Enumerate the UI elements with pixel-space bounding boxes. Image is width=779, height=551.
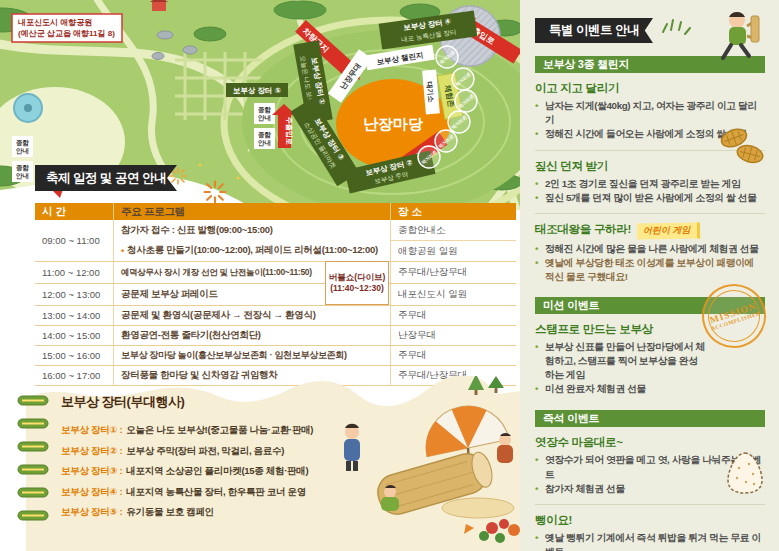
- market-list-item: 보부상 장터② : 보부상 주막(장터 파전, 막걸리, 음료수): [61, 445, 361, 458]
- svg-text:안내: 안내: [16, 147, 29, 155]
- info-booth-label: 종합 안내: [12, 161, 33, 182]
- svg-text:종합: 종합: [258, 106, 272, 114]
- cell-place: 내포신도시 일원: [390, 284, 516, 305]
- market-list-item: 보부상 장터③ : 내포지역 소상공인 플리마켓(15종 체험·판매): [61, 465, 361, 478]
- cell-place: 난장무대: [390, 326, 516, 345]
- event-title-taffy: 엿장수 마음대로~: [535, 435, 765, 450]
- park-name-box: 내포신도시 애향공원 (예산군 삽교읍 애향11길 8): [12, 14, 122, 42]
- schedule-banner: 축제 일정 및 공연 안내: [35, 165, 177, 191]
- svg-text:주출입로: 주출입로: [285, 117, 293, 145]
- svg-text:안내: 안내: [258, 139, 271, 147]
- pond-center: [24, 104, 32, 112]
- market-section-title: 보부상 장터(부대행사): [61, 393, 184, 411]
- kids-game-badge: 어린이 게임: [637, 222, 700, 239]
- cell-program: 공문제 및 환영식(공문제사 → 전장식 → 환영식): [113, 306, 390, 325]
- place-line: 종합안내소: [391, 220, 516, 240]
- madang-label: 난장마당: [363, 115, 423, 132]
- cell-time: 11:00 ~ 12:00: [35, 262, 113, 283]
- svg-text:안내: 안내: [16, 172, 29, 180]
- event-title-text: 태조대왕을 구하라!: [535, 223, 631, 235]
- bubble-show-box: 버블쇼(다이브) (11:40~12:30): [325, 261, 389, 305]
- info-booth-label: 종합 안내: [12, 136, 33, 157]
- special-events-panel: 특별 이벤트 안내 보부상 3종 챌린지 이고 지고 달리기 남자는 지게(쌀4…: [520, 0, 779, 551]
- event-bullet: 2인 1조 경기로 짚신을 던져 광주리로 받는 게임: [535, 177, 765, 191]
- event-bullet: 미션 완료자 체험권 선물: [535, 382, 765, 396]
- special-events-banner: 특별 이벤트 안내: [535, 18, 653, 43]
- market-item-label: 보부상 장터① :: [61, 424, 122, 437]
- market-section-list: 보부상 장터① : 오늘은 나도 보부상!(중고물품 나눔·교환·판매) 보부상…: [61, 424, 361, 527]
- market-item-desc: 오늘은 나도 보부상!(중고물품 나눔·교환·판매): [126, 424, 313, 437]
- event-bullet: 보부상 신표를 만들어 난장마당에서 체험하고, 스탬프를 찍어 보부상을 완성…: [535, 340, 705, 383]
- mission-stamp-icon: MISSION ACCOMPLISHED: [694, 276, 775, 357]
- info-booth-label: 종합 안내: [254, 103, 275, 124]
- runner-illustration: [707, 6, 769, 68]
- svg-text:안내: 안내: [258, 114, 271, 122]
- table-row: 15:00 ~ 16:00 보부상 장마당 놀이(홍산보부상보존회 · 임천보부…: [35, 346, 516, 366]
- cell-time: 15:00 ~ 16:00: [35, 346, 113, 365]
- market-item-label: 보부상 장터⑤ :: [61, 506, 122, 519]
- info-booth-label: 종합 안내: [254, 128, 275, 149]
- cell-time: 12:00 ~ 13:00: [35, 284, 113, 305]
- bubble-show-name: 버블쇼(다이브): [329, 272, 386, 283]
- col-header-place: 장 소: [390, 203, 516, 220]
- event-bullet: 짚신 5개를 던져 많이 받은 사람에게 소정의 쌀 선물: [535, 191, 765, 205]
- rice-ball-icon: [724, 450, 766, 496]
- col-header-time: 시 간: [35, 203, 113, 220]
- event-title-carry-run: 이고 지고 달리기: [535, 81, 765, 96]
- cell-place: 주무대/난장무대: [390, 262, 516, 283]
- market-item-label: 보부상 장터④ :: [61, 486, 122, 499]
- program-line: 청사초롱 만들기(10:00~12:00), 퍼레이드 리허설(11:00~12…: [114, 240, 390, 261]
- cell-program: 참가자 접수 : 신표 발행(09:00~15:00) 청사초롱 만들기(10:…: [113, 220, 390, 261]
- svg-text:종합: 종합: [258, 131, 272, 139]
- market-item-desc: 내포지역 농특산물 장터, 한우특판 코너 운영: [126, 486, 306, 499]
- program-line: 참가자 접수 : 신표 발행(09:00~15:00): [114, 220, 390, 240]
- event-bullet-note: 옛날에 부상당한 태조 이성계를 보부상이 패랭이에 적신 물로 구했대요!: [535, 256, 765, 284]
- table-row: 11:00 ~ 12:00 예덕상무사 장시 개장 선언 및 난전놀이(11:0…: [35, 262, 516, 284]
- col-header-program: 주요 프로그램: [113, 203, 390, 220]
- cell-time: 14:00 ~ 15:00: [35, 326, 113, 345]
- bubble-show-time: (11:40~12:30): [330, 283, 384, 294]
- market-item-label: 보부상 장터③ :: [61, 465, 122, 478]
- market-list-item: 보부상 장터① : 오늘은 나도 보부상!(중고물품 나눔·교환·판매): [61, 424, 361, 437]
- market-item-desc: 내포지역 소상공인 플리마켓(15종 체험·판매): [126, 465, 308, 478]
- svg-text:종합: 종합: [16, 139, 30, 147]
- table-header-row: 시 간 주요 프로그램 장 소: [35, 203, 516, 220]
- svg-text:보부상 장터 ⑤: 보부상 장터 ⑤: [233, 86, 281, 95]
- section-bar-instant: 즉석 이벤트: [535, 410, 765, 427]
- table-row: 09:00 ~ 11:00 참가자 접수 : 신표 발행(09:00~15:00…: [35, 220, 516, 262]
- schedule-table: 시 간 주요 프로그램 장 소 09:00 ~ 11:00 참가자 접수 : 신…: [35, 203, 516, 386]
- cell-program: 보부상 장마당 놀이(홍산보부상보존회 · 임천보부상보존회): [113, 346, 390, 365]
- divider: [535, 213, 765, 214]
- table-row: 12:00 ~ 13:00 공문제 보부상 퍼레이드 내포신도시 일원: [35, 284, 516, 306]
- market-list-item: 보부상 장터⑤ : 유기동물 보호 캠페인: [61, 506, 361, 519]
- sparkle-icon: [657, 10, 691, 40]
- building-icon: [150, 0, 168, 11]
- cell-program: 환영공연-전통 줄타기(천산연희단): [113, 326, 390, 345]
- straw-shoes-icon: [716, 122, 768, 168]
- grain-spill: [442, 498, 514, 518]
- place-line: 애향공원 일원: [391, 240, 516, 261]
- table-row: 13:00 ~ 14:00 공문제 및 환영식(공문제사 → 전장식 → 환영식…: [35, 306, 516, 326]
- cell-time: 09:00 ~ 11:00: [35, 220, 113, 261]
- cell-place: 주무대: [390, 346, 516, 365]
- festival-flyer: 난장마당 내포신도시 애향공원 (예산군 삽교읍 애향11길 8) 보부상 장터…: [0, 0, 779, 551]
- market-item-label: 보부상 장터② :: [61, 445, 122, 458]
- market-item-desc: 유기동물 보호 캠페인: [126, 506, 213, 519]
- market-item-desc: 보부상 주막(장터 파전, 막걸리, 음료수): [126, 445, 284, 458]
- svg-text:내포신도시 애향공원: 내포신도시 애향공원: [18, 18, 92, 27]
- table-row: 14:00 ~ 15:00 환영공연-전통 줄타기(천산연희단) 난장무대: [35, 326, 516, 346]
- event-bullet: 정해진 시간에 많은 물을 나른 사람에게 체험권 선물: [535, 242, 765, 256]
- cell-place: 종합안내소 애향공원 일원: [390, 220, 516, 261]
- map-market5-label: 보부상 장터 ⑤: [226, 83, 288, 97]
- cell-time: 13:00 ~ 14:00: [35, 306, 113, 325]
- event-title-save-taejo: 태조대왕을 구하라!어린이 게임: [535, 222, 765, 239]
- event-title-popped-rice: 뻥이요!: [535, 513, 765, 528]
- svg-text:종합: 종합: [16, 164, 30, 172]
- svg-text:(예산군 삽교읍 애향11길 8): (예산군 삽교읍 애향11길 8): [18, 29, 115, 38]
- cell-place: 주무대: [390, 306, 516, 325]
- divider: [535, 504, 765, 505]
- market-list-item: 보부상 장터④ : 내포지역 농특산물 장터, 한우특판 코너 운영: [61, 486, 361, 499]
- event-bullet: 옛날 뻥튀기 기계에서 즉석 튀밥을 튀겨 먹는 무료 이벤트: [535, 531, 765, 551]
